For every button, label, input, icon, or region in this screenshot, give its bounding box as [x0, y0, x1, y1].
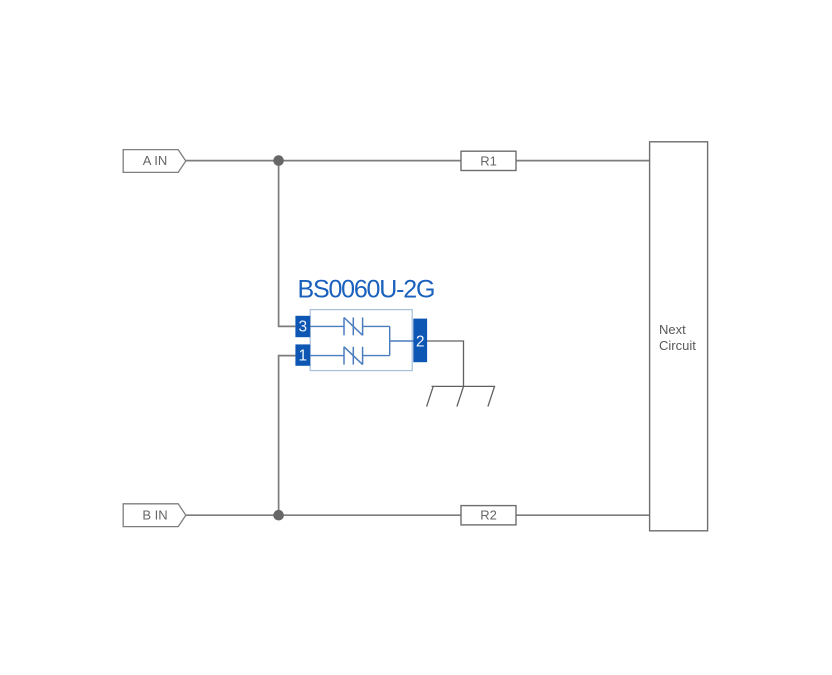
svg-text:R2: R2 — [480, 508, 497, 523]
svg-text:BS0060U-2G: BS0060U-2G — [298, 276, 435, 304]
svg-text:Next: Next — [659, 322, 686, 337]
svg-text:Circuit: Circuit — [659, 338, 696, 353]
svg-text:R1: R1 — [480, 153, 497, 168]
svg-text:2: 2 — [416, 333, 425, 350]
svg-text:1: 1 — [298, 347, 307, 364]
svg-text:A IN: A IN — [143, 153, 168, 168]
svg-text:B IN: B IN — [142, 507, 167, 522]
svg-text:3: 3 — [298, 319, 307, 336]
